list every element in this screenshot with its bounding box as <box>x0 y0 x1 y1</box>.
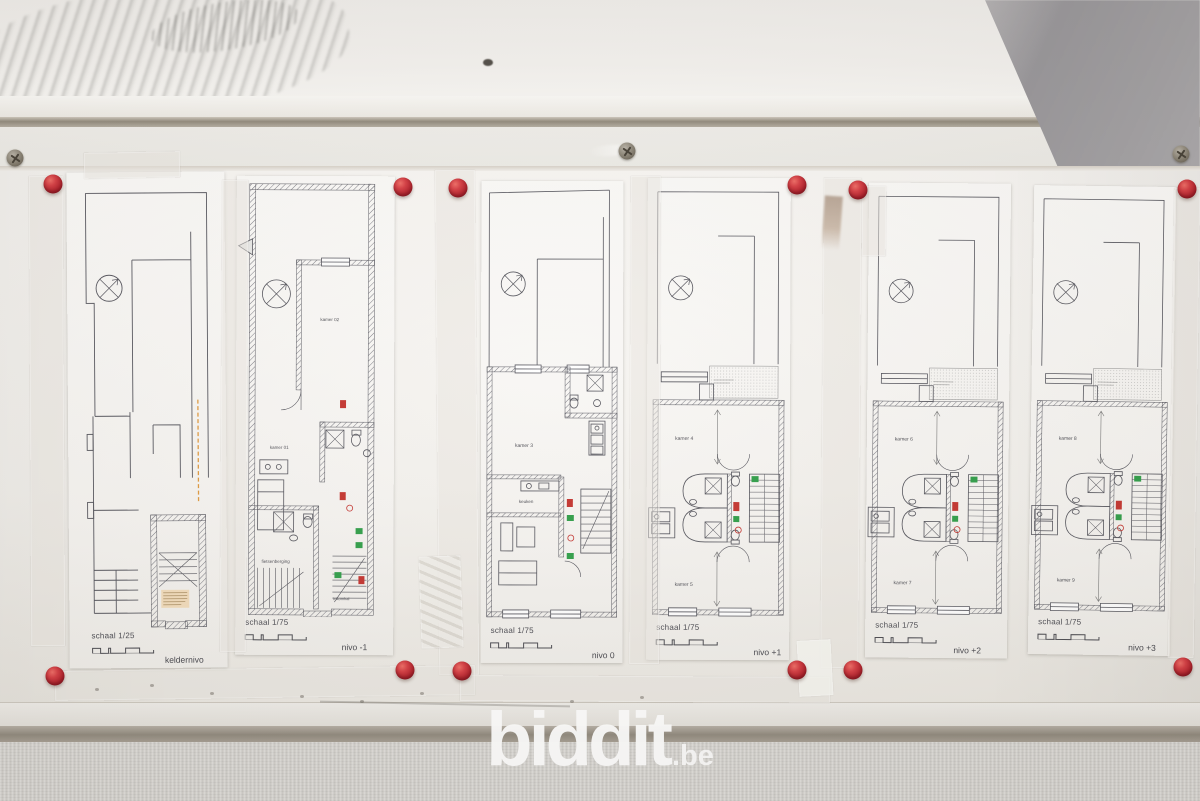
tape-strip <box>220 180 248 652</box>
red-pin <box>44 175 63 194</box>
sheet-caption: schaal 1/75 nivo +2 <box>865 619 1007 658</box>
nivo-plus2-plan-lines <box>867 196 1005 614</box>
red-pin <box>394 178 413 197</box>
speck <box>150 684 154 687</box>
scale-label: schaal 1/75 <box>656 623 699 632</box>
level-label: nivo +2 <box>953 645 981 655</box>
floor-plan-drawing: kamer 4 kamer 5 <box>646 178 791 622</box>
nivo-plus3-plan-lines <box>1030 199 1170 612</box>
screw <box>619 143 636 160</box>
north-compass-icon <box>889 279 913 303</box>
room-label: keuken <box>519 499 534 504</box>
floor-plan-drawing: kamer 6 kamer 7 <box>865 182 1011 620</box>
fire-extinguisher-icon <box>358 576 364 584</box>
stair-core <box>151 515 207 629</box>
red-pin <box>453 662 472 681</box>
tape-strip <box>629 176 661 664</box>
speck <box>95 688 99 691</box>
furniture <box>499 523 537 585</box>
red-pin <box>788 176 807 195</box>
stairs <box>968 475 999 542</box>
floor-plan-drawing: kamer 3 keuken <box>481 181 624 625</box>
exit-sign-icon <box>567 553 574 559</box>
scale-bar <box>653 634 727 648</box>
wall-speck <box>483 59 493 66</box>
fire-extinguisher-icon <box>340 400 346 408</box>
fire-extinguisher-icon <box>1116 501 1122 510</box>
nivo-0-plan-lines <box>487 190 618 618</box>
stairs <box>1131 474 1162 540</box>
exit-sign-icon <box>334 572 341 578</box>
floor-plan-drawing: kamer 02 kamer 01 fietsenberging inkomha… <box>235 176 395 618</box>
tape-strip <box>862 186 887 256</box>
floor-plan-sheet-keldernivo: schaal 1/25 keldernivo <box>66 171 227 668</box>
red-pin <box>844 661 863 680</box>
floor-plan-sheet-nivo-min1: kamer 02 kamer 01 fietsenberging inkomha… <box>235 176 395 656</box>
scale-label: schaal 1/75 <box>245 618 288 627</box>
scale-bar <box>1035 628 1109 643</box>
exit-sign-icon <box>752 476 759 482</box>
stairs <box>749 474 779 542</box>
bathroom-fixtures <box>274 512 313 541</box>
fire-extinguisher-icon <box>952 502 958 511</box>
red-pin <box>449 179 468 198</box>
biddit-tld-text: .be <box>672 740 714 773</box>
red-pin <box>46 667 65 686</box>
floor-plan-sheet-nivo-plus2: kamer 6 kamer 7 schaal 1/75 nivo +2 <box>865 182 1011 658</box>
exit-sign-icon <box>356 528 363 534</box>
tape-strip-crumpled <box>418 555 463 648</box>
north-compass-icon <box>262 280 290 308</box>
sheet-caption: schaal 1/75 nivo 0 <box>481 625 623 663</box>
red-pin <box>1174 658 1193 677</box>
biddit-watermark: biddit.be <box>486 705 714 775</box>
room-label: kamer 8 <box>1059 436 1077 442</box>
room-label: kamer 02 <box>320 317 339 322</box>
scale-label: schaal 1/75 <box>1038 617 1081 627</box>
sheet-caption: schaal 1/75 nivo +1 <box>646 622 789 660</box>
room-label: kamer 01 <box>270 445 289 450</box>
level-label: keldernivo <box>165 655 204 665</box>
exit-sign-icon <box>356 542 363 548</box>
north-compass-icon <box>669 276 693 300</box>
red-pin <box>1178 180 1197 199</box>
fire-extinguisher-icon <box>340 492 346 500</box>
exit-sign-icon <box>733 516 739 522</box>
exit-sign-icon <box>952 516 958 522</box>
alarm-icon <box>568 535 574 541</box>
basement-plan-lines <box>85 193 209 630</box>
tape-strip <box>29 176 65 646</box>
room-label: inkomhal <box>333 596 349 601</box>
tape-strip <box>84 151 180 179</box>
sheet-caption: schaal 1/25 keldernivo <box>69 629 227 668</box>
bed <box>258 480 284 530</box>
orange-markup-line <box>198 400 199 502</box>
bathroom-fixtures <box>570 375 603 408</box>
level-label: nivo -1 <box>342 642 368 652</box>
scale-bar <box>242 629 316 643</box>
speck <box>210 692 214 695</box>
fire-extinguisher-icon <box>733 502 739 511</box>
speck <box>300 695 304 698</box>
red-pin <box>396 661 415 680</box>
tape-strip <box>820 178 861 668</box>
biddit-brand-text: biddit <box>486 705 669 775</box>
room-label: fietsenberging <box>261 559 290 564</box>
fire-extinguisher-icon <box>567 499 573 507</box>
room-label: kamer 9 <box>1057 577 1075 583</box>
room-label: kamer 4 <box>675 436 693 442</box>
floor-plan-sheet-nivo-0: kamer 3 keuken schaal 1/75 nivo 0 <box>481 181 624 663</box>
scale-label: schaal 1/25 <box>91 631 134 640</box>
room-label: kamer 3 <box>515 443 533 449</box>
speck <box>420 692 424 695</box>
scale-label: schaal 1/75 <box>875 620 918 629</box>
red-pin <box>788 661 807 680</box>
north-compass-icon <box>501 272 525 296</box>
room-label: kamer 5 <box>675 582 693 588</box>
red-pin <box>849 181 868 200</box>
screw <box>1173 146 1190 163</box>
terrace <box>881 368 997 402</box>
scale-label: schaal 1/75 <box>491 626 534 635</box>
nivo-min1-plan-lines <box>237 184 375 617</box>
exit-sign-icon <box>567 515 574 521</box>
wall-bevel <box>0 96 1200 118</box>
scale-bar <box>90 642 164 657</box>
terrace <box>1045 368 1161 403</box>
level-label: nivo 0 <box>592 650 615 660</box>
terrace <box>661 366 778 400</box>
level-label: nivo +1 <box>754 647 782 657</box>
bathroom-fixtures <box>326 430 371 457</box>
floor-plan-sheet-nivo-plus1: kamer 4 kamer 5 schaal 1/75 nivo +1 <box>646 178 791 660</box>
exit-sign-icon <box>1134 476 1141 482</box>
exit-sign-icon <box>970 477 977 483</box>
stairs <box>581 489 611 553</box>
scale-bar <box>872 631 946 646</box>
wall-groove <box>0 117 1200 127</box>
alarm-icon <box>347 505 353 511</box>
room-label: kamer 7 <box>894 580 912 586</box>
level-label: nivo +3 <box>1128 642 1156 652</box>
sheet-caption: schaal 1/75 nivo +3 <box>1028 616 1171 656</box>
north-compass-icon <box>96 275 122 301</box>
tape-scuff-mark <box>821 195 843 250</box>
scale-bar <box>488 637 562 651</box>
photo-floorplans-on-wall: schaal 1/25 keldernivo <box>0 0 1200 801</box>
north-compass-icon <box>1054 280 1078 304</box>
nivo-plus1-plan-lines <box>648 192 784 616</box>
screw <box>7 150 24 167</box>
floor-plan-drawing <box>66 171 227 630</box>
floor-plan-sheet-nivo-plus3: kamer 8 kamer 9 schaal 1/75 nivo +3 <box>1028 185 1177 656</box>
floor-plan-drawing: kamer 8 kamer 9 <box>1028 185 1176 618</box>
sheet-caption: schaal 1/75 nivo -1 <box>235 617 393 656</box>
exit-sign-icon <box>1116 514 1122 520</box>
room-label: kamer 6 <box>895 437 913 443</box>
